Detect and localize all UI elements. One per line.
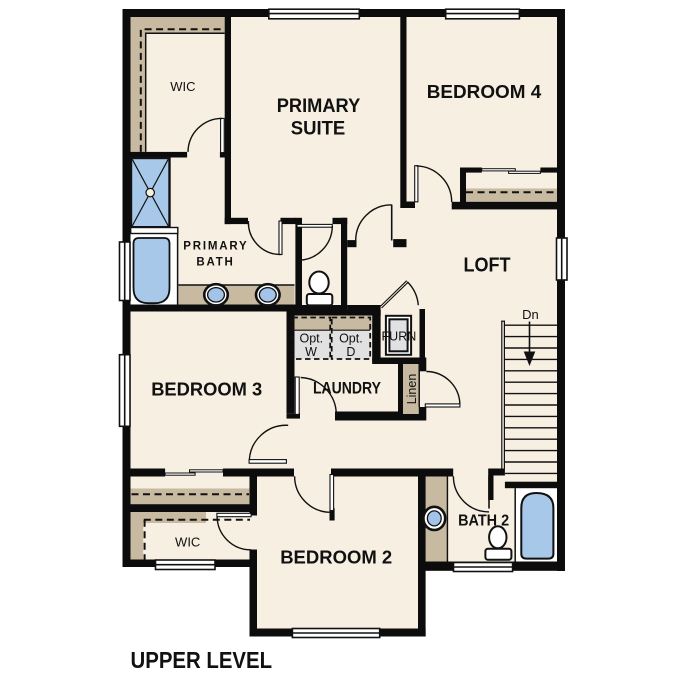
svg-text:Linen: Linen [405,374,419,405]
svg-text:BEDROOM 4: BEDROOM 4 [427,81,542,102]
svg-text:WIC: WIC [170,79,195,94]
svg-text:W: W [305,345,317,359]
svg-text:D: D [346,345,355,359]
svg-text:UPPER LEVEL: UPPER LEVEL [131,647,273,673]
svg-text:BATH 2: BATH 2 [458,512,509,529]
svg-text:FURN: FURN [382,329,417,343]
svg-text:WIC: WIC [175,534,200,549]
svg-text:BATH: BATH [196,256,234,268]
svg-text:LAUNDRY: LAUNDRY [313,379,382,398]
svg-text:Dn: Dn [522,307,539,322]
svg-text:LOFT: LOFT [464,254,511,276]
svg-text:PRIMARY: PRIMARY [183,240,248,252]
svg-text:BEDROOM 3: BEDROOM 3 [151,379,262,400]
svg-text:SUITE: SUITE [291,119,346,140]
svg-text:PRIMARY: PRIMARY [277,96,361,117]
svg-text:BEDROOM 2: BEDROOM 2 [280,547,392,568]
svg-text:Opt.: Opt. [339,331,363,345]
svg-text:Opt.: Opt. [299,331,323,345]
